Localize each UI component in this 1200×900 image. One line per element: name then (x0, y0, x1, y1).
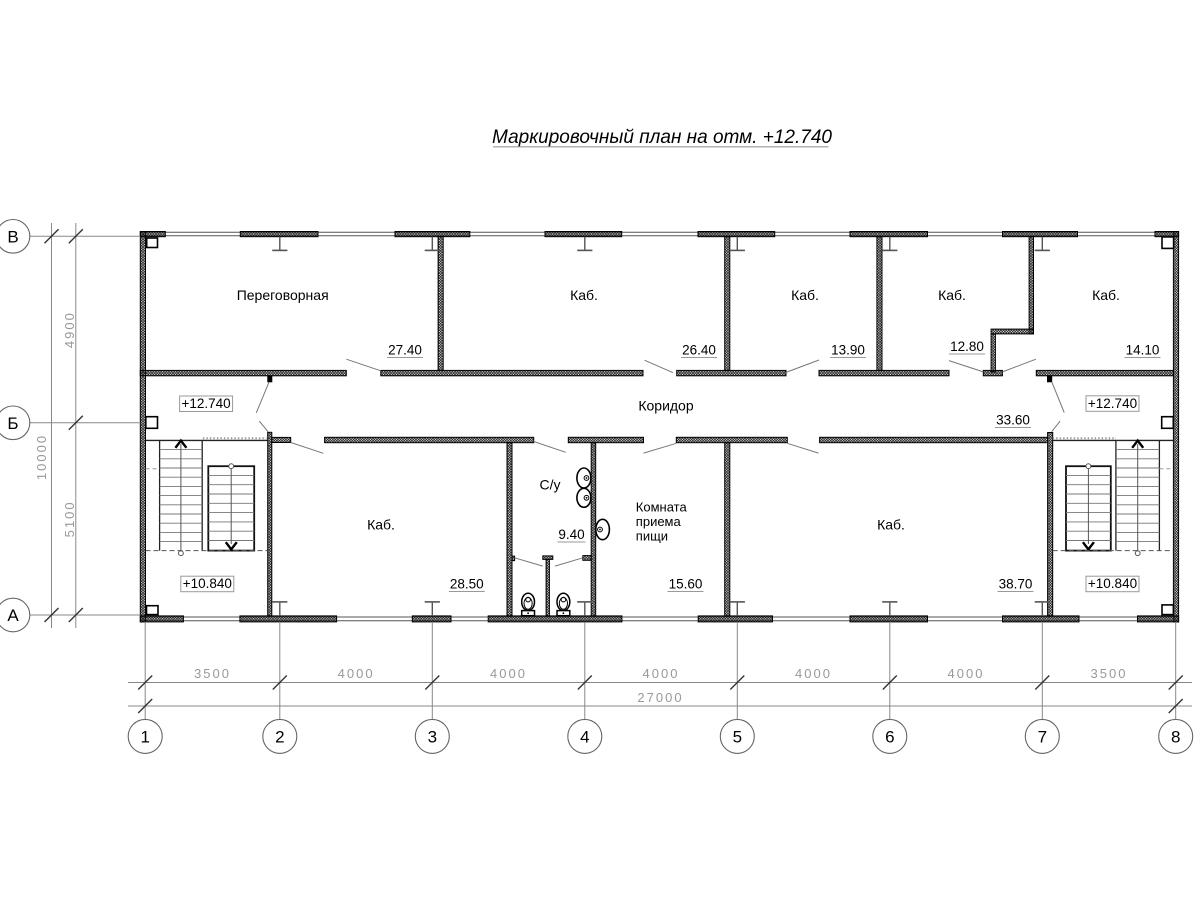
svg-text:3500: 3500 (1091, 666, 1128, 681)
svg-text:Каб.: Каб. (791, 287, 819, 303)
svg-text:Коридор: Коридор (638, 397, 694, 413)
svg-text:1: 1 (140, 727, 149, 746)
svg-text:33.60: 33.60 (996, 413, 1030, 428)
svg-text:4000: 4000 (490, 666, 527, 681)
svg-text:14.10: 14.10 (1126, 343, 1160, 358)
svg-text:26.40: 26.40 (682, 343, 716, 358)
svg-text:6: 6 (885, 727, 894, 746)
svg-text:В: В (7, 227, 18, 246)
svg-text:Каб.: Каб. (877, 517, 905, 533)
svg-text:4000: 4000 (948, 666, 985, 681)
svg-text:5100: 5100 (62, 500, 77, 537)
svg-text:3: 3 (428, 727, 437, 746)
svg-text:5: 5 (733, 727, 742, 746)
svg-text:Комната: Комната (636, 500, 688, 515)
svg-text:7: 7 (1038, 727, 1047, 746)
svg-text:+10.840: +10.840 (1088, 576, 1137, 591)
svg-text:С/у: С/у (540, 477, 561, 493)
svg-text:15.60: 15.60 (669, 577, 703, 592)
svg-text:+12.740: +12.740 (182, 396, 231, 411)
svg-text:2: 2 (275, 727, 284, 746)
svg-text:приема: приема (636, 514, 682, 529)
svg-text:13.90: 13.90 (831, 343, 865, 358)
svg-text:Каб.: Каб. (570, 287, 598, 303)
svg-text:Маркировочный план на отм. +12: Маркировочный план на отм. +12.740 (492, 127, 832, 148)
svg-text:4000: 4000 (338, 666, 375, 681)
svg-text:пищи: пищи (636, 529, 668, 544)
svg-text:27.40: 27.40 (388, 343, 422, 358)
svg-text:А: А (7, 606, 19, 625)
svg-text:Переговорная: Переговорная (237, 287, 329, 303)
svg-text:4900: 4900 (62, 311, 77, 348)
svg-text:4000: 4000 (795, 666, 832, 681)
svg-text:Б: Б (7, 414, 18, 433)
svg-text:+10.840: +10.840 (183, 576, 232, 591)
svg-text:27000: 27000 (637, 690, 683, 705)
svg-text:10000: 10000 (34, 434, 49, 480)
svg-text:12.80: 12.80 (950, 339, 984, 354)
svg-text:Каб.: Каб. (938, 287, 966, 303)
svg-text:4000: 4000 (643, 666, 680, 681)
svg-text:Каб.: Каб. (1092, 287, 1120, 303)
svg-text:8: 8 (1171, 727, 1180, 746)
svg-text:3500: 3500 (194, 666, 231, 681)
svg-text:38.70: 38.70 (999, 577, 1033, 592)
svg-text:9.40: 9.40 (558, 527, 584, 542)
svg-text:4: 4 (580, 727, 589, 746)
svg-text:+12.740: +12.740 (1088, 396, 1137, 411)
svg-text:Каб.: Каб. (367, 517, 395, 533)
svg-text:28.50: 28.50 (450, 577, 484, 592)
